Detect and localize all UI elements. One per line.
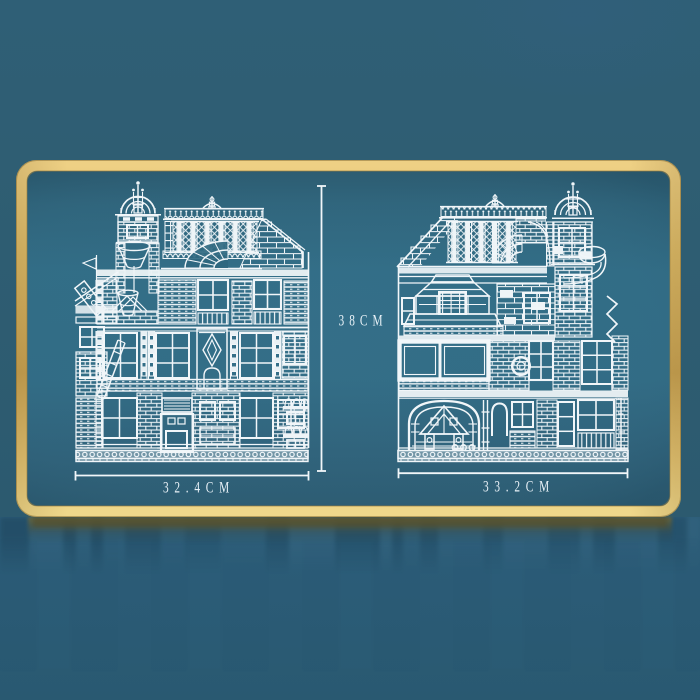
svg-text:32.4CM: 32.4CM [163,480,235,497]
svg-text:33.2CM: 33.2CM [483,479,555,496]
svg-text:38CM: 38CM [339,313,388,330]
